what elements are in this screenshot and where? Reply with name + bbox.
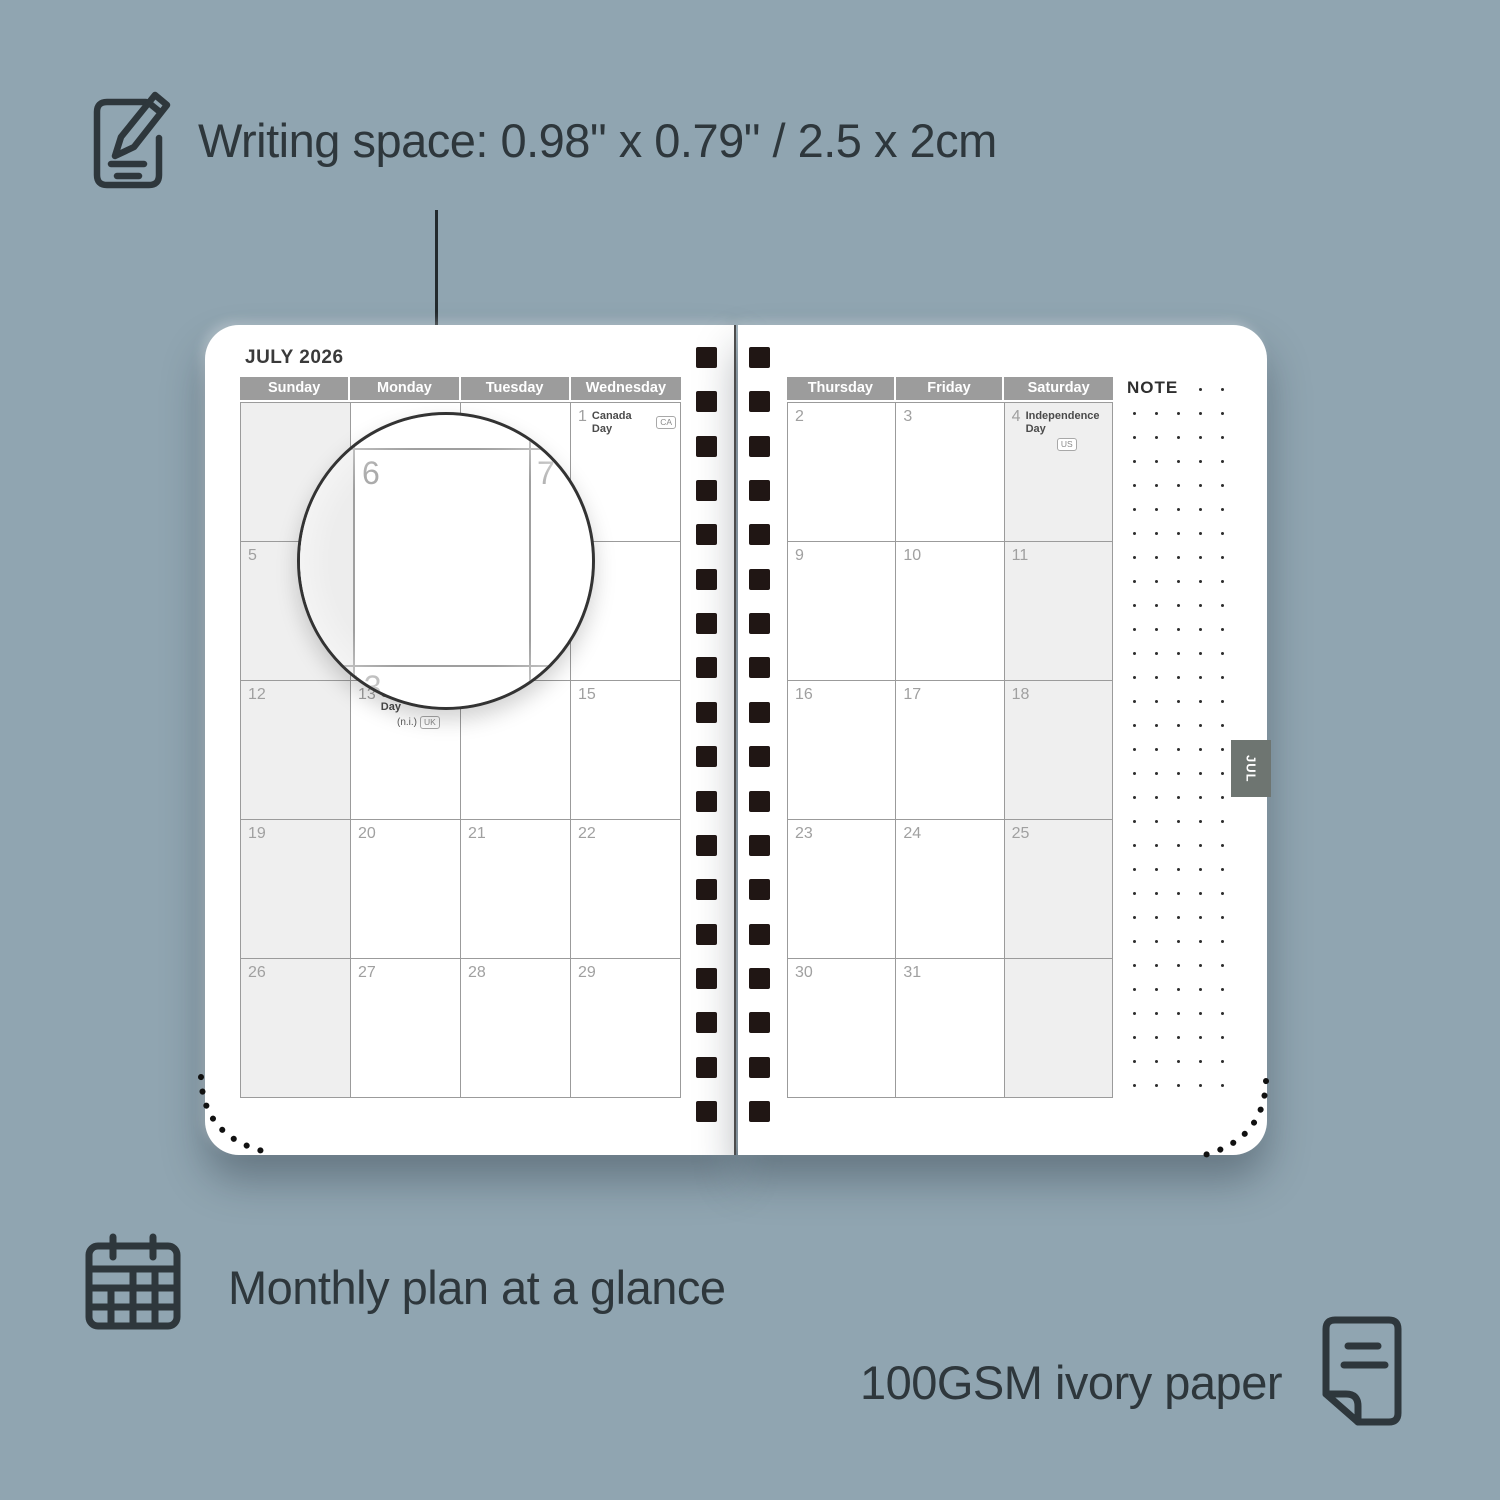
note-dot bbox=[1177, 676, 1180, 679]
magnified-day-6: 6 bbox=[362, 457, 380, 489]
spiral-square bbox=[696, 702, 717, 723]
note-dot bbox=[1199, 532, 1202, 535]
note-dot bbox=[1177, 892, 1180, 895]
note-dot bbox=[1155, 652, 1158, 655]
perforation-arc-right bbox=[1190, 1077, 1274, 1161]
spiral-square bbox=[749, 524, 770, 545]
spiral-square bbox=[696, 791, 717, 812]
note-dot bbox=[1177, 1012, 1180, 1015]
day-number: 9 bbox=[795, 547, 804, 565]
note-dot bbox=[1221, 868, 1224, 871]
note-dot-grid bbox=[1133, 380, 1243, 1110]
note-dot bbox=[1133, 700, 1136, 703]
note-dot bbox=[1221, 748, 1224, 751]
note-dot bbox=[1177, 580, 1180, 583]
day-number: 31 bbox=[903, 964, 921, 982]
note-dot bbox=[1155, 1060, 1158, 1063]
day-number: 5 bbox=[248, 547, 257, 565]
calendar-day-cell bbox=[1005, 959, 1113, 1098]
spiral-square bbox=[749, 968, 770, 989]
magnified-grid-line bbox=[529, 415, 531, 707]
note-dot bbox=[1133, 556, 1136, 559]
day-number: 21 bbox=[468, 825, 486, 843]
calendar-day-cell: 17 bbox=[896, 681, 1004, 820]
calendar-day-cell: 18 bbox=[1005, 681, 1113, 820]
country-badge: US bbox=[1057, 438, 1077, 451]
note-dot bbox=[1133, 580, 1136, 583]
day-number: 15 bbox=[578, 686, 596, 704]
paper-icon bbox=[1318, 1313, 1406, 1429]
magnified-grid-line bbox=[300, 448, 592, 450]
note-dot bbox=[1199, 388, 1202, 391]
day-number: 2 bbox=[795, 408, 804, 426]
note-dot bbox=[1221, 1060, 1224, 1063]
note-dot bbox=[1199, 652, 1202, 655]
weekday-header: Thursday bbox=[787, 377, 896, 400]
weekday-header-row: ThursdayFridaySaturday bbox=[787, 377, 1113, 400]
spiral-square bbox=[749, 436, 770, 457]
day-number: 26 bbox=[248, 964, 266, 982]
spiral-square bbox=[696, 879, 717, 900]
note-dot bbox=[1199, 940, 1202, 943]
note-dot bbox=[1155, 700, 1158, 703]
note-pencil-icon bbox=[86, 80, 174, 192]
day-number: 20 bbox=[358, 825, 376, 843]
day-number: 11 bbox=[1012, 547, 1029, 565]
day-number: 12 bbox=[248, 686, 266, 704]
calendar-day-cell: 16 bbox=[788, 681, 896, 820]
note-dot bbox=[1133, 748, 1136, 751]
spiral-square bbox=[696, 347, 717, 368]
note-dot bbox=[1177, 604, 1180, 607]
spiral-square bbox=[696, 524, 717, 545]
note-dot bbox=[1133, 1084, 1136, 1087]
note-dot bbox=[1155, 412, 1158, 415]
note-dot bbox=[1133, 484, 1136, 487]
note-dot bbox=[1221, 436, 1224, 439]
note-dot bbox=[1133, 796, 1136, 799]
note-dot bbox=[1221, 940, 1224, 943]
note-dot bbox=[1177, 964, 1180, 967]
note-dot bbox=[1221, 1036, 1224, 1039]
day-number: 18 bbox=[1012, 686, 1030, 704]
note-dot bbox=[1177, 484, 1180, 487]
spiral-square bbox=[749, 791, 770, 812]
note-dot bbox=[1199, 676, 1202, 679]
spiral-square bbox=[749, 347, 770, 368]
spiral-square bbox=[696, 746, 717, 767]
note-dot bbox=[1155, 484, 1158, 487]
note-dot bbox=[1133, 508, 1136, 511]
spiral-square bbox=[696, 569, 717, 590]
spiral-square bbox=[749, 657, 770, 678]
note-dot bbox=[1177, 940, 1180, 943]
day-grid: 234Independence DayUS9101116171823242530… bbox=[787, 402, 1113, 1098]
note-dot bbox=[1199, 412, 1202, 415]
holiday-note: (n.i.) bbox=[397, 717, 417, 728]
note-dot bbox=[1199, 484, 1202, 487]
note-dot bbox=[1133, 772, 1136, 775]
weekday-header: Friday bbox=[896, 377, 1005, 400]
note-dot bbox=[1155, 532, 1158, 535]
note-dot bbox=[1155, 556, 1158, 559]
page-spine-line bbox=[734, 325, 736, 1155]
perforation-arc-left bbox=[193, 1073, 277, 1157]
note-dot bbox=[1177, 724, 1180, 727]
day-number: 17 bbox=[903, 686, 921, 704]
note-dot bbox=[1177, 796, 1180, 799]
note-dot bbox=[1155, 868, 1158, 871]
magnified-grid-line bbox=[353, 415, 355, 707]
note-dot bbox=[1221, 412, 1224, 415]
month-title: JULY 2026 bbox=[245, 347, 344, 369]
note-dot bbox=[1133, 988, 1136, 991]
note-dot bbox=[1199, 748, 1202, 751]
note-dot bbox=[1221, 628, 1224, 631]
note-dot bbox=[1199, 772, 1202, 775]
day-number: 24 bbox=[903, 825, 921, 843]
spiral-square bbox=[749, 480, 770, 501]
note-dot bbox=[1155, 460, 1158, 463]
planner-right-page: ThursdayFridaySaturday234Independence Da… bbox=[738, 325, 1267, 1155]
weekday-header: Saturday bbox=[1004, 377, 1113, 400]
note-dot bbox=[1199, 868, 1202, 871]
note-dot bbox=[1177, 460, 1180, 463]
day-number: 16 bbox=[795, 686, 813, 704]
note-dot bbox=[1133, 892, 1136, 895]
spiral-square bbox=[696, 391, 717, 412]
spiral-square bbox=[749, 702, 770, 723]
note-dot bbox=[1221, 964, 1224, 967]
note-dot bbox=[1177, 1060, 1180, 1063]
note-dot bbox=[1221, 724, 1224, 727]
note-dot bbox=[1177, 916, 1180, 919]
note-dot bbox=[1221, 916, 1224, 919]
calendar-day-cell: 30 bbox=[788, 959, 896, 1098]
weekday-header: Wednesday bbox=[571, 377, 681, 400]
note-dot bbox=[1177, 988, 1180, 991]
magnified-day-7: 7 bbox=[537, 457, 555, 489]
calendar-day-cell: 2 bbox=[788, 403, 896, 542]
calendar-day-cell: 10 bbox=[896, 542, 1004, 681]
note-dot bbox=[1133, 844, 1136, 847]
spiral-square bbox=[696, 835, 717, 856]
day-number: 22 bbox=[578, 825, 596, 843]
note-dot bbox=[1155, 508, 1158, 511]
calendar-day-cell: 9 bbox=[788, 542, 896, 681]
note-dot bbox=[1199, 1012, 1202, 1015]
note-dot bbox=[1155, 796, 1158, 799]
note-dot bbox=[1177, 652, 1180, 655]
paper-label: 100GSM ivory paper bbox=[860, 1355, 1282, 1410]
calendar-day-cell: 4Independence DayUS bbox=[1005, 403, 1113, 542]
note-dot bbox=[1133, 604, 1136, 607]
note-dot bbox=[1133, 1060, 1136, 1063]
day-number: 28 bbox=[468, 964, 486, 982]
calendar-day-cell: 31 bbox=[896, 959, 1004, 1098]
note-dot bbox=[1199, 988, 1202, 991]
note-dot bbox=[1199, 556, 1202, 559]
note-dot bbox=[1155, 964, 1158, 967]
note-dot bbox=[1155, 1084, 1158, 1087]
note-dot bbox=[1221, 676, 1224, 679]
calendar-day-cell: 21 bbox=[461, 820, 571, 959]
note-dot bbox=[1199, 1060, 1202, 1063]
note-dot bbox=[1133, 628, 1136, 631]
spiral-square bbox=[749, 746, 770, 767]
calendar-day-cell: 29 bbox=[571, 959, 681, 1098]
note-dot bbox=[1221, 700, 1224, 703]
note-dot bbox=[1221, 988, 1224, 991]
spiral-square bbox=[749, 391, 770, 412]
note-dot bbox=[1177, 700, 1180, 703]
note-dot bbox=[1133, 436, 1136, 439]
spiral-square bbox=[696, 968, 717, 989]
note-dot bbox=[1155, 676, 1158, 679]
note-dot bbox=[1177, 1036, 1180, 1039]
note-dot bbox=[1199, 580, 1202, 583]
note-dot bbox=[1133, 532, 1136, 535]
note-dot bbox=[1199, 916, 1202, 919]
note-dot bbox=[1133, 676, 1136, 679]
writing-space-label: Writing space: 0.98" x 0.79" / 2.5 x 2cm bbox=[198, 113, 997, 168]
note-dot bbox=[1199, 604, 1202, 607]
month-tab-jul: JUL bbox=[1231, 740, 1271, 797]
spiral-square bbox=[749, 924, 770, 945]
calendar-day-cell: 3 bbox=[896, 403, 1004, 542]
note-dot bbox=[1155, 772, 1158, 775]
day-number: 23 bbox=[795, 825, 813, 843]
note-dot bbox=[1133, 940, 1136, 943]
note-dot bbox=[1199, 892, 1202, 895]
note-dot bbox=[1221, 508, 1224, 511]
note-dot bbox=[1133, 1012, 1136, 1015]
calendar-day-cell: 23 bbox=[788, 820, 896, 959]
note-dot bbox=[1199, 508, 1202, 511]
calendar-grid-icon bbox=[84, 1233, 182, 1331]
note-dot bbox=[1155, 436, 1158, 439]
day-number: 19 bbox=[248, 825, 266, 843]
spiral-square bbox=[696, 1101, 717, 1122]
note-dot bbox=[1199, 724, 1202, 727]
note-dot bbox=[1177, 868, 1180, 871]
note-dot bbox=[1221, 460, 1224, 463]
note-dot bbox=[1199, 964, 1202, 967]
weekday-header: Tuesday bbox=[461, 377, 571, 400]
monthly-plan-label: Monthly plan at a glance bbox=[228, 1260, 726, 1315]
note-dot bbox=[1199, 1036, 1202, 1039]
note-dot bbox=[1221, 652, 1224, 655]
note-dot bbox=[1133, 820, 1136, 823]
note-dot bbox=[1133, 868, 1136, 871]
day-number: 27 bbox=[358, 964, 376, 982]
note-dot bbox=[1155, 940, 1158, 943]
magnified-sunday-column bbox=[300, 415, 354, 707]
note-dot bbox=[1199, 460, 1202, 463]
spiral-square bbox=[749, 835, 770, 856]
note-dot bbox=[1133, 916, 1136, 919]
note-dot bbox=[1155, 844, 1158, 847]
note-dot bbox=[1177, 532, 1180, 535]
note-dot bbox=[1221, 820, 1224, 823]
spiral-square bbox=[696, 924, 717, 945]
spiral-square bbox=[696, 1057, 717, 1078]
spiral-square bbox=[749, 569, 770, 590]
note-dot bbox=[1221, 772, 1224, 775]
spiral-square bbox=[696, 1012, 717, 1033]
calendar-day-cell: 25 bbox=[1005, 820, 1113, 959]
day-number: 25 bbox=[1012, 825, 1030, 843]
note-dot bbox=[1199, 844, 1202, 847]
day-number: 29 bbox=[578, 964, 596, 982]
holiday: Independence DayUS bbox=[1026, 410, 1108, 451]
note-dot bbox=[1177, 748, 1180, 751]
spiral-square bbox=[696, 613, 717, 634]
holiday: Canada DayCA bbox=[592, 410, 676, 436]
note-dot bbox=[1199, 796, 1202, 799]
note-dot bbox=[1199, 820, 1202, 823]
magnifier-circle: 6 7 13 bbox=[297, 412, 595, 710]
note-dot bbox=[1133, 652, 1136, 655]
note-dot bbox=[1155, 1012, 1158, 1015]
calendar-day-cell: 19 bbox=[241, 820, 351, 959]
calendar-day-cell: 22 bbox=[571, 820, 681, 959]
note-dot bbox=[1133, 460, 1136, 463]
weekday-header-row: SundayMondayTuesdayWednesday bbox=[240, 377, 681, 400]
note-dot bbox=[1133, 412, 1136, 415]
magnified-day-13: 13 bbox=[346, 671, 382, 703]
note-dot bbox=[1155, 892, 1158, 895]
spiral-square bbox=[749, 879, 770, 900]
calendar-day-cell: 11 bbox=[1005, 542, 1113, 681]
calendar-right-grid: ThursdayFridaySaturday234Independence Da… bbox=[787, 377, 1113, 1098]
calendar-day-cell: 27 bbox=[351, 959, 461, 1098]
note-dot bbox=[1221, 580, 1224, 583]
holiday-name: Independence Day bbox=[1026, 410, 1108, 436]
note-dot bbox=[1155, 628, 1158, 631]
day-number: 30 bbox=[795, 964, 813, 982]
note-dot bbox=[1177, 436, 1180, 439]
spiral-square bbox=[696, 480, 717, 501]
note-dot bbox=[1133, 964, 1136, 967]
note-dot bbox=[1221, 796, 1224, 799]
note-dot bbox=[1155, 988, 1158, 991]
calendar-day-cell: 28 bbox=[461, 959, 571, 1098]
note-dot bbox=[1177, 556, 1180, 559]
note-dot bbox=[1177, 628, 1180, 631]
spiral-square bbox=[749, 1057, 770, 1078]
weekday-header: Monday bbox=[350, 377, 460, 400]
spiral-square bbox=[749, 613, 770, 634]
note-dot bbox=[1177, 1084, 1180, 1087]
calendar-day-cell: 24 bbox=[896, 820, 1004, 959]
note-dot bbox=[1177, 772, 1180, 775]
note-dot bbox=[1221, 604, 1224, 607]
note-dot bbox=[1221, 388, 1224, 391]
note-dot bbox=[1221, 1012, 1224, 1015]
day-number: 1 bbox=[578, 408, 587, 426]
day-number: 4 bbox=[1012, 408, 1021, 426]
holiday-name: Canada Day bbox=[592, 410, 652, 436]
spiral-square bbox=[696, 436, 717, 457]
note-dot bbox=[1177, 412, 1180, 415]
note-dot bbox=[1155, 604, 1158, 607]
day-number: 10 bbox=[903, 547, 921, 565]
country-badge: UK bbox=[420, 716, 440, 729]
note-dot bbox=[1155, 916, 1158, 919]
note-dot bbox=[1155, 748, 1158, 751]
note-dot bbox=[1199, 436, 1202, 439]
note-dot bbox=[1177, 844, 1180, 847]
spiral-square bbox=[749, 1012, 770, 1033]
spiral-square bbox=[696, 657, 717, 678]
note-dot bbox=[1221, 532, 1224, 535]
note-dot bbox=[1177, 508, 1180, 511]
note-dot bbox=[1155, 1036, 1158, 1039]
spiral-square bbox=[749, 1101, 770, 1122]
note-dot bbox=[1221, 484, 1224, 487]
note-dot bbox=[1133, 724, 1136, 727]
calendar-day-cell: 20 bbox=[351, 820, 461, 959]
day-number: 3 bbox=[903, 408, 912, 426]
magnified-grid-line bbox=[300, 665, 592, 667]
note-dot bbox=[1199, 700, 1202, 703]
note-dot bbox=[1199, 628, 1202, 631]
country-badge: CA bbox=[656, 416, 676, 429]
note-dot bbox=[1221, 556, 1224, 559]
note-dot bbox=[1221, 844, 1224, 847]
note-dot bbox=[1177, 820, 1180, 823]
note-dot bbox=[1155, 724, 1158, 727]
note-dot bbox=[1133, 1036, 1136, 1039]
note-dot bbox=[1155, 820, 1158, 823]
note-dot bbox=[1155, 580, 1158, 583]
weekday-header: Sunday bbox=[240, 377, 350, 400]
note-dot bbox=[1221, 892, 1224, 895]
planner-product-image: Writing space: 0.98" x 0.79" / 2.5 x 2cm… bbox=[0, 0, 1500, 1500]
calendar-day-cell: 15 bbox=[571, 681, 681, 820]
